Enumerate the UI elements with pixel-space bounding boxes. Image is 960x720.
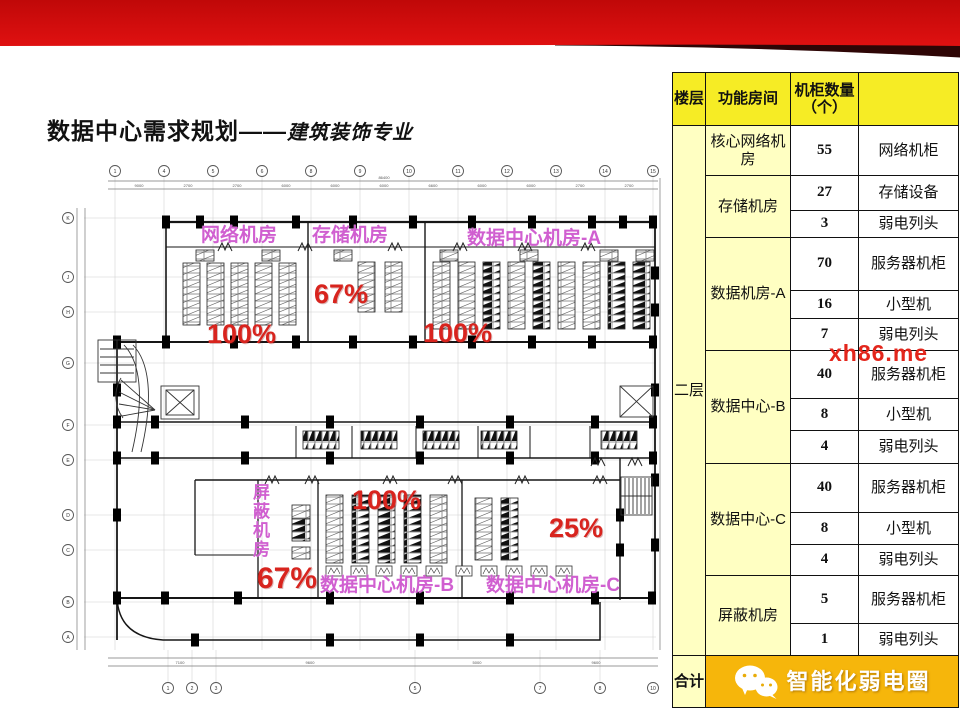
svg-text:5: 5 xyxy=(212,169,215,175)
occupancy-storage: 67% xyxy=(314,281,368,308)
svg-text:8: 8 xyxy=(599,686,602,692)
svg-text:H: H xyxy=(66,310,70,316)
svg-text:4: 4 xyxy=(163,169,166,175)
table-row: 数据机房-A 70 服务器机柜 xyxy=(673,238,959,291)
qty-cell: 16 xyxy=(791,291,859,319)
svg-text:6000: 6000 xyxy=(527,183,537,188)
wechat-brand-name: 智能化弱电圈 xyxy=(786,669,930,694)
name-cell: 弱电列头 xyxy=(859,211,959,238)
svg-text:2: 2 xyxy=(191,686,194,692)
svg-text:3: 3 xyxy=(215,686,218,692)
total-value-cell: 智能化弱电圈 xyxy=(706,656,959,708)
rack-count-table: 楼层 功能房间 机柜数量（个） 二层 核心网络机房 55 网络机柜 存储机房 2… xyxy=(672,72,959,708)
svg-text:F: F xyxy=(66,423,69,429)
occupancy-dc-b: 100% xyxy=(352,487,421,514)
svg-text:13: 13 xyxy=(553,169,559,175)
svg-text:6000: 6000 xyxy=(282,183,292,188)
svg-text:5000: 5000 xyxy=(473,660,483,665)
svg-text:86400: 86400 xyxy=(378,175,390,180)
header-type xyxy=(859,73,959,126)
header-floor: 楼层 xyxy=(673,73,706,126)
room-label-dc-a: 数据中心机房-A xyxy=(467,229,601,248)
qty-cell: 4 xyxy=(791,431,859,464)
svg-text:1: 1 xyxy=(114,169,117,175)
title-sub: 建筑装饰专业 xyxy=(287,122,413,144)
floor-cell: 二层 xyxy=(673,126,706,656)
name-cell: 服务器机柜 xyxy=(859,238,959,291)
room-label-dc-b: 数据中心机房-B xyxy=(320,576,454,595)
qty-cell: 5 xyxy=(791,576,859,624)
svg-text:7: 7 xyxy=(539,686,542,692)
qty-cell: 8 xyxy=(791,399,859,431)
room-label-storage: 存储机房 xyxy=(312,226,388,245)
title-main: 数据中心需求规划—— xyxy=(47,118,287,144)
room-cell: 数据中心-C xyxy=(706,464,791,576)
name-cell: 弱电列头 xyxy=(859,624,959,656)
occupancy-shield: 67% xyxy=(257,564,317,594)
table-row: 二层 核心网络机房 55 网络机柜 xyxy=(673,126,959,176)
svg-text:10: 10 xyxy=(406,169,412,175)
svg-text:15: 15 xyxy=(650,169,656,175)
name-cell: 服务器机柜 xyxy=(859,464,959,513)
watermark: xh86.me xyxy=(829,340,928,367)
svg-text:7100: 7100 xyxy=(176,660,186,665)
qty-cell: 8 xyxy=(791,513,859,545)
svg-text:9: 9 xyxy=(359,169,362,175)
svg-text:G: G xyxy=(66,361,70,367)
svg-text:8: 8 xyxy=(310,169,313,175)
name-cell: 网络机柜 xyxy=(859,126,959,176)
grid-lines xyxy=(84,177,656,682)
qty-cell: 55 xyxy=(791,126,859,176)
svg-text:D: D xyxy=(66,513,70,519)
svg-text:6: 6 xyxy=(261,169,264,175)
svg-text:9000: 9000 xyxy=(135,183,145,188)
table-total-row: 合计 智能化弱电圈 xyxy=(673,656,959,708)
svg-text:6000: 6000 xyxy=(380,183,390,188)
svg-text:1: 1 xyxy=(167,686,170,692)
svg-text:9600: 9600 xyxy=(306,660,316,665)
svg-text:C: C xyxy=(66,548,70,554)
occupancy-dc-a: 100% xyxy=(423,320,492,347)
room-cell: 数据机房-A xyxy=(706,238,791,351)
table-header-row: 楼层 功能房间 机柜数量（个） xyxy=(673,73,959,126)
table-row: 存储机房 27 存储设备 xyxy=(673,176,959,211)
name-cell: 弱电列头 xyxy=(859,431,959,464)
qty-cell: 27 xyxy=(791,176,859,211)
qty-cell: 70 xyxy=(791,238,859,291)
svg-text:2700: 2700 xyxy=(184,183,194,188)
svg-text:11: 11 xyxy=(455,169,460,175)
qty-cell: 1 xyxy=(791,624,859,656)
svg-text:6000: 6000 xyxy=(478,183,488,188)
wechat-brand: 智能化弱电圈 xyxy=(706,664,958,700)
dimension-values-bottom: 7100 9600 5000 9600 xyxy=(176,660,602,665)
svg-text:12: 12 xyxy=(504,169,510,175)
name-cell: 小型机 xyxy=(859,513,959,545)
name-cell: 弱电列头 xyxy=(859,545,959,576)
svg-text:2700: 2700 xyxy=(625,183,635,188)
svg-text:2700: 2700 xyxy=(576,183,586,188)
grid-bubbles-bottom xyxy=(163,683,659,694)
occupancy-dc-c: 25% xyxy=(549,515,603,542)
dimension-values-top: 9000 2700 2700 6000 6000 6000 6600 6000 … xyxy=(135,175,635,188)
svg-text:2700: 2700 xyxy=(233,183,243,188)
room-label-network: 网络机房 xyxy=(201,226,277,245)
room-cell: 存储机房 xyxy=(706,176,791,238)
name-cell: 存储设备 xyxy=(859,176,959,211)
wechat-icon xyxy=(733,664,779,700)
slide: 数据中心需求规划——建筑装饰专业 xyxy=(0,0,960,720)
svg-text:9600: 9600 xyxy=(592,660,602,665)
page-title: 数据中心需求规划——建筑装饰专业 xyxy=(47,112,413,146)
table-row: 数据中心-C 40 服务器机柜 xyxy=(673,464,959,513)
name-cell: 小型机 xyxy=(859,399,959,431)
room-cell: 核心网络机房 xyxy=(706,126,791,176)
svg-text:6000: 6000 xyxy=(331,183,341,188)
occupancy-network: 100% xyxy=(207,321,276,348)
qty-cell: 40 xyxy=(791,464,859,513)
room-label-dc-c: 数据中心机房-C xyxy=(486,576,620,595)
svg-text:14: 14 xyxy=(602,169,608,175)
qty-cell: 3 xyxy=(791,211,859,238)
header-room: 功能房间 xyxy=(706,73,791,126)
name-cell: 服务器机柜 xyxy=(859,576,959,624)
room-cell: 屏蔽机房 xyxy=(706,576,791,656)
header-qty: 机柜数量（个） xyxy=(791,73,859,126)
qty-cell: 4 xyxy=(791,545,859,576)
room-cell: 数据中心-B xyxy=(706,351,791,464)
table-row: 屏蔽机房 5 服务器机柜 xyxy=(673,576,959,624)
svg-text:5: 5 xyxy=(414,686,417,692)
svg-text:6600: 6600 xyxy=(429,183,439,188)
name-cell: 小型机 xyxy=(859,291,959,319)
svg-text:10: 10 xyxy=(650,686,656,692)
total-label-cell: 合计 xyxy=(673,656,706,708)
